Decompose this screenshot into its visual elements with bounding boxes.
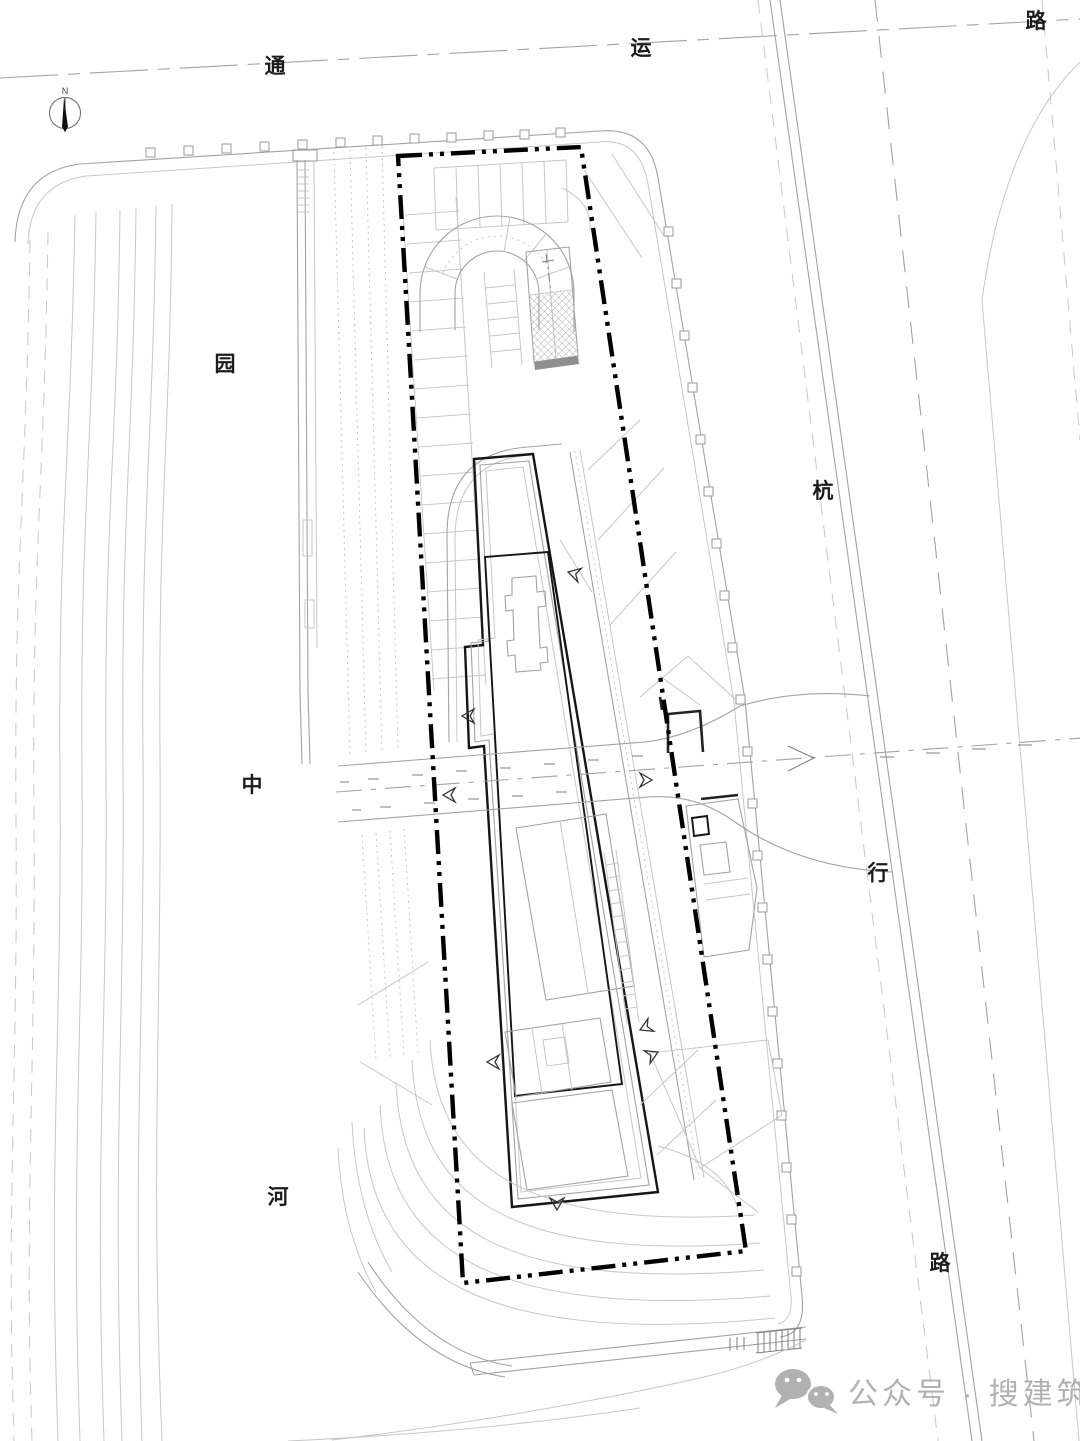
entrance-arrows — [443, 565, 661, 1210]
watermark: 公众号 · 搜建筑 — [775, 1369, 1080, 1414]
north-arrow: N — [50, 86, 81, 132]
river-bank-lines — [11, 204, 172, 1441]
road-top-label-1: 通 — [265, 55, 286, 78]
access-road — [336, 656, 1080, 872]
parking-area — [402, 154, 664, 690]
road-right-label-1: 杭 — [813, 479, 834, 503]
site-plan-drawing: N 通 运 路 杭 行 路 园 中 河 公众号 · 搜建筑 — [0, 0, 1080, 1441]
road-right-label-2: 行 — [867, 861, 889, 885]
ramp-hatched — [526, 247, 579, 370]
river-label-2: 中 — [242, 774, 263, 797]
east-structures — [650, 799, 782, 1212]
road-right-label-3: 路 — [930, 1251, 952, 1275]
tongyun-road — [0, 19, 1080, 78]
road-top-label-3: 路 — [1026, 9, 1048, 33]
road-top-label-2: 运 — [631, 37, 652, 60]
south-terraces — [288, 1040, 806, 1441]
north-letter: N — [62, 86, 69, 96]
river-label-3: 河 — [268, 1186, 289, 1209]
main-building — [447, 420, 716, 1207]
river-label-1: 园 — [215, 353, 236, 376]
watermark-text: 公众号 · 搜建筑 — [848, 1378, 1080, 1411]
wechat-icon — [775, 1369, 838, 1414]
site-plan-canvas: N 通 运 路 杭 行 路 园 中 河 公众号 · 搜建筑 — [0, 0, 1080, 1441]
hangxing-road — [758, 0, 1080, 1441]
